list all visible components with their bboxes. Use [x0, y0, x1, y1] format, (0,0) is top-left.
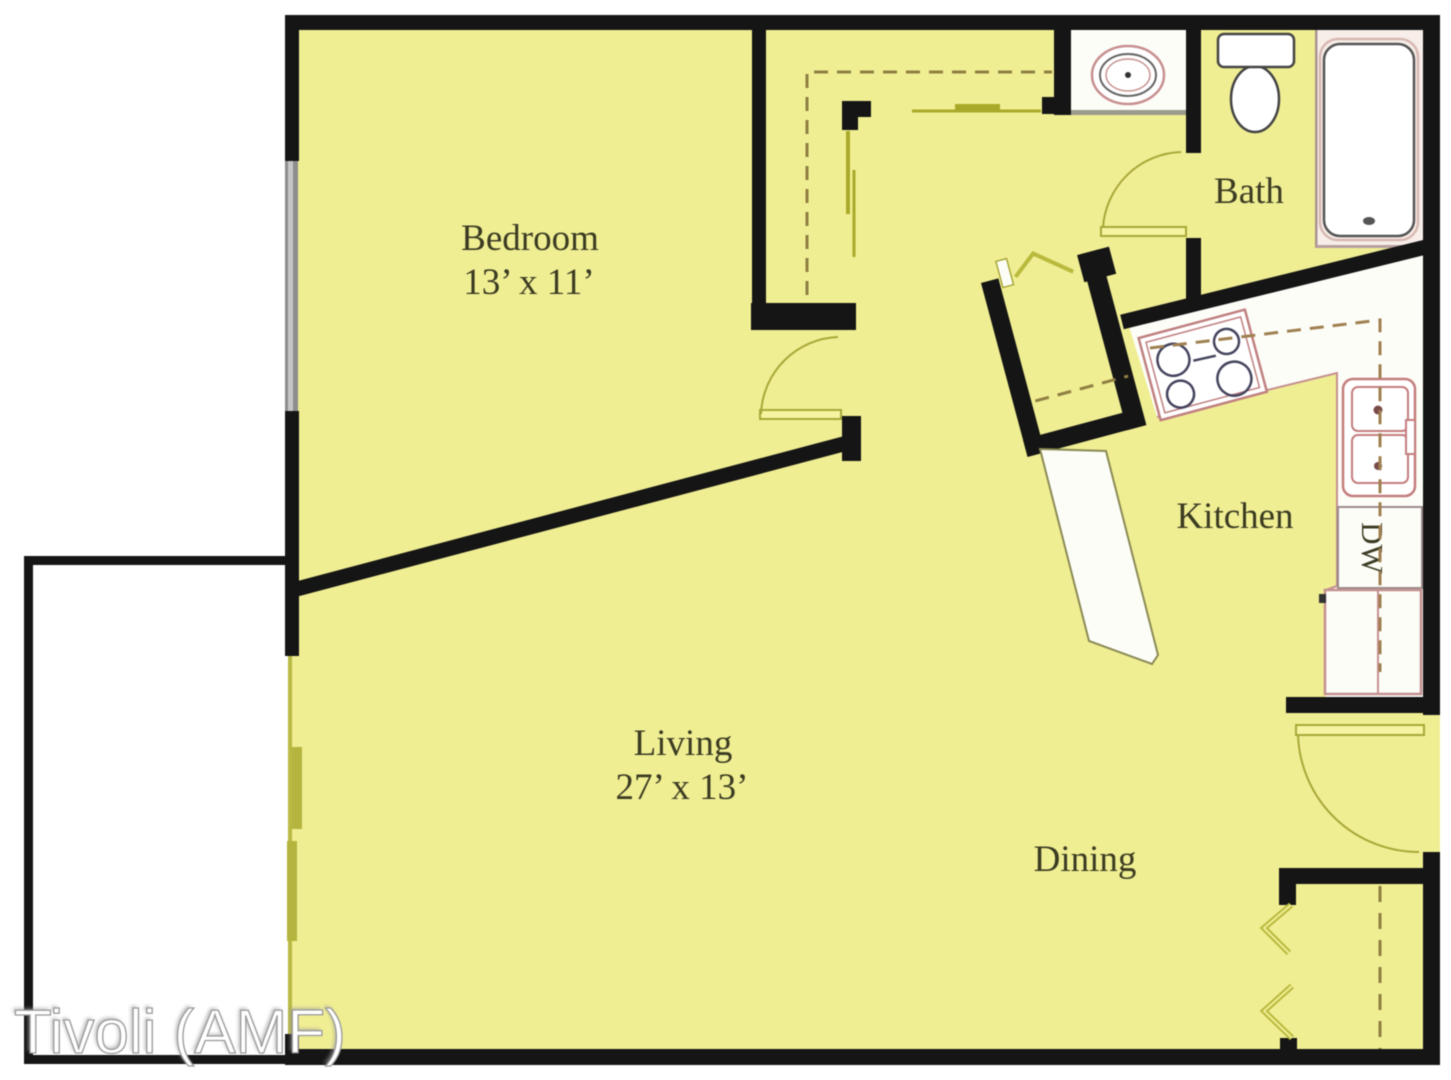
svg-text:Bath: Bath [1214, 171, 1284, 212]
svg-text:27’ x 13’: 27’ x 13’ [616, 767, 749, 808]
svg-text:DW: DW [1355, 522, 1390, 574]
svg-text:Dining: Dining [1034, 839, 1137, 880]
svg-text:13’ x 11’: 13’ x 11’ [463, 262, 595, 303]
svg-text:Bedroom: Bedroom [461, 218, 599, 259]
svg-text:Kitchen: Kitchen [1176, 496, 1293, 537]
svg-text:Living: Living [634, 723, 733, 764]
svg-text:Tivoli (AMF): Tivoli (AMF) [14, 998, 346, 1067]
